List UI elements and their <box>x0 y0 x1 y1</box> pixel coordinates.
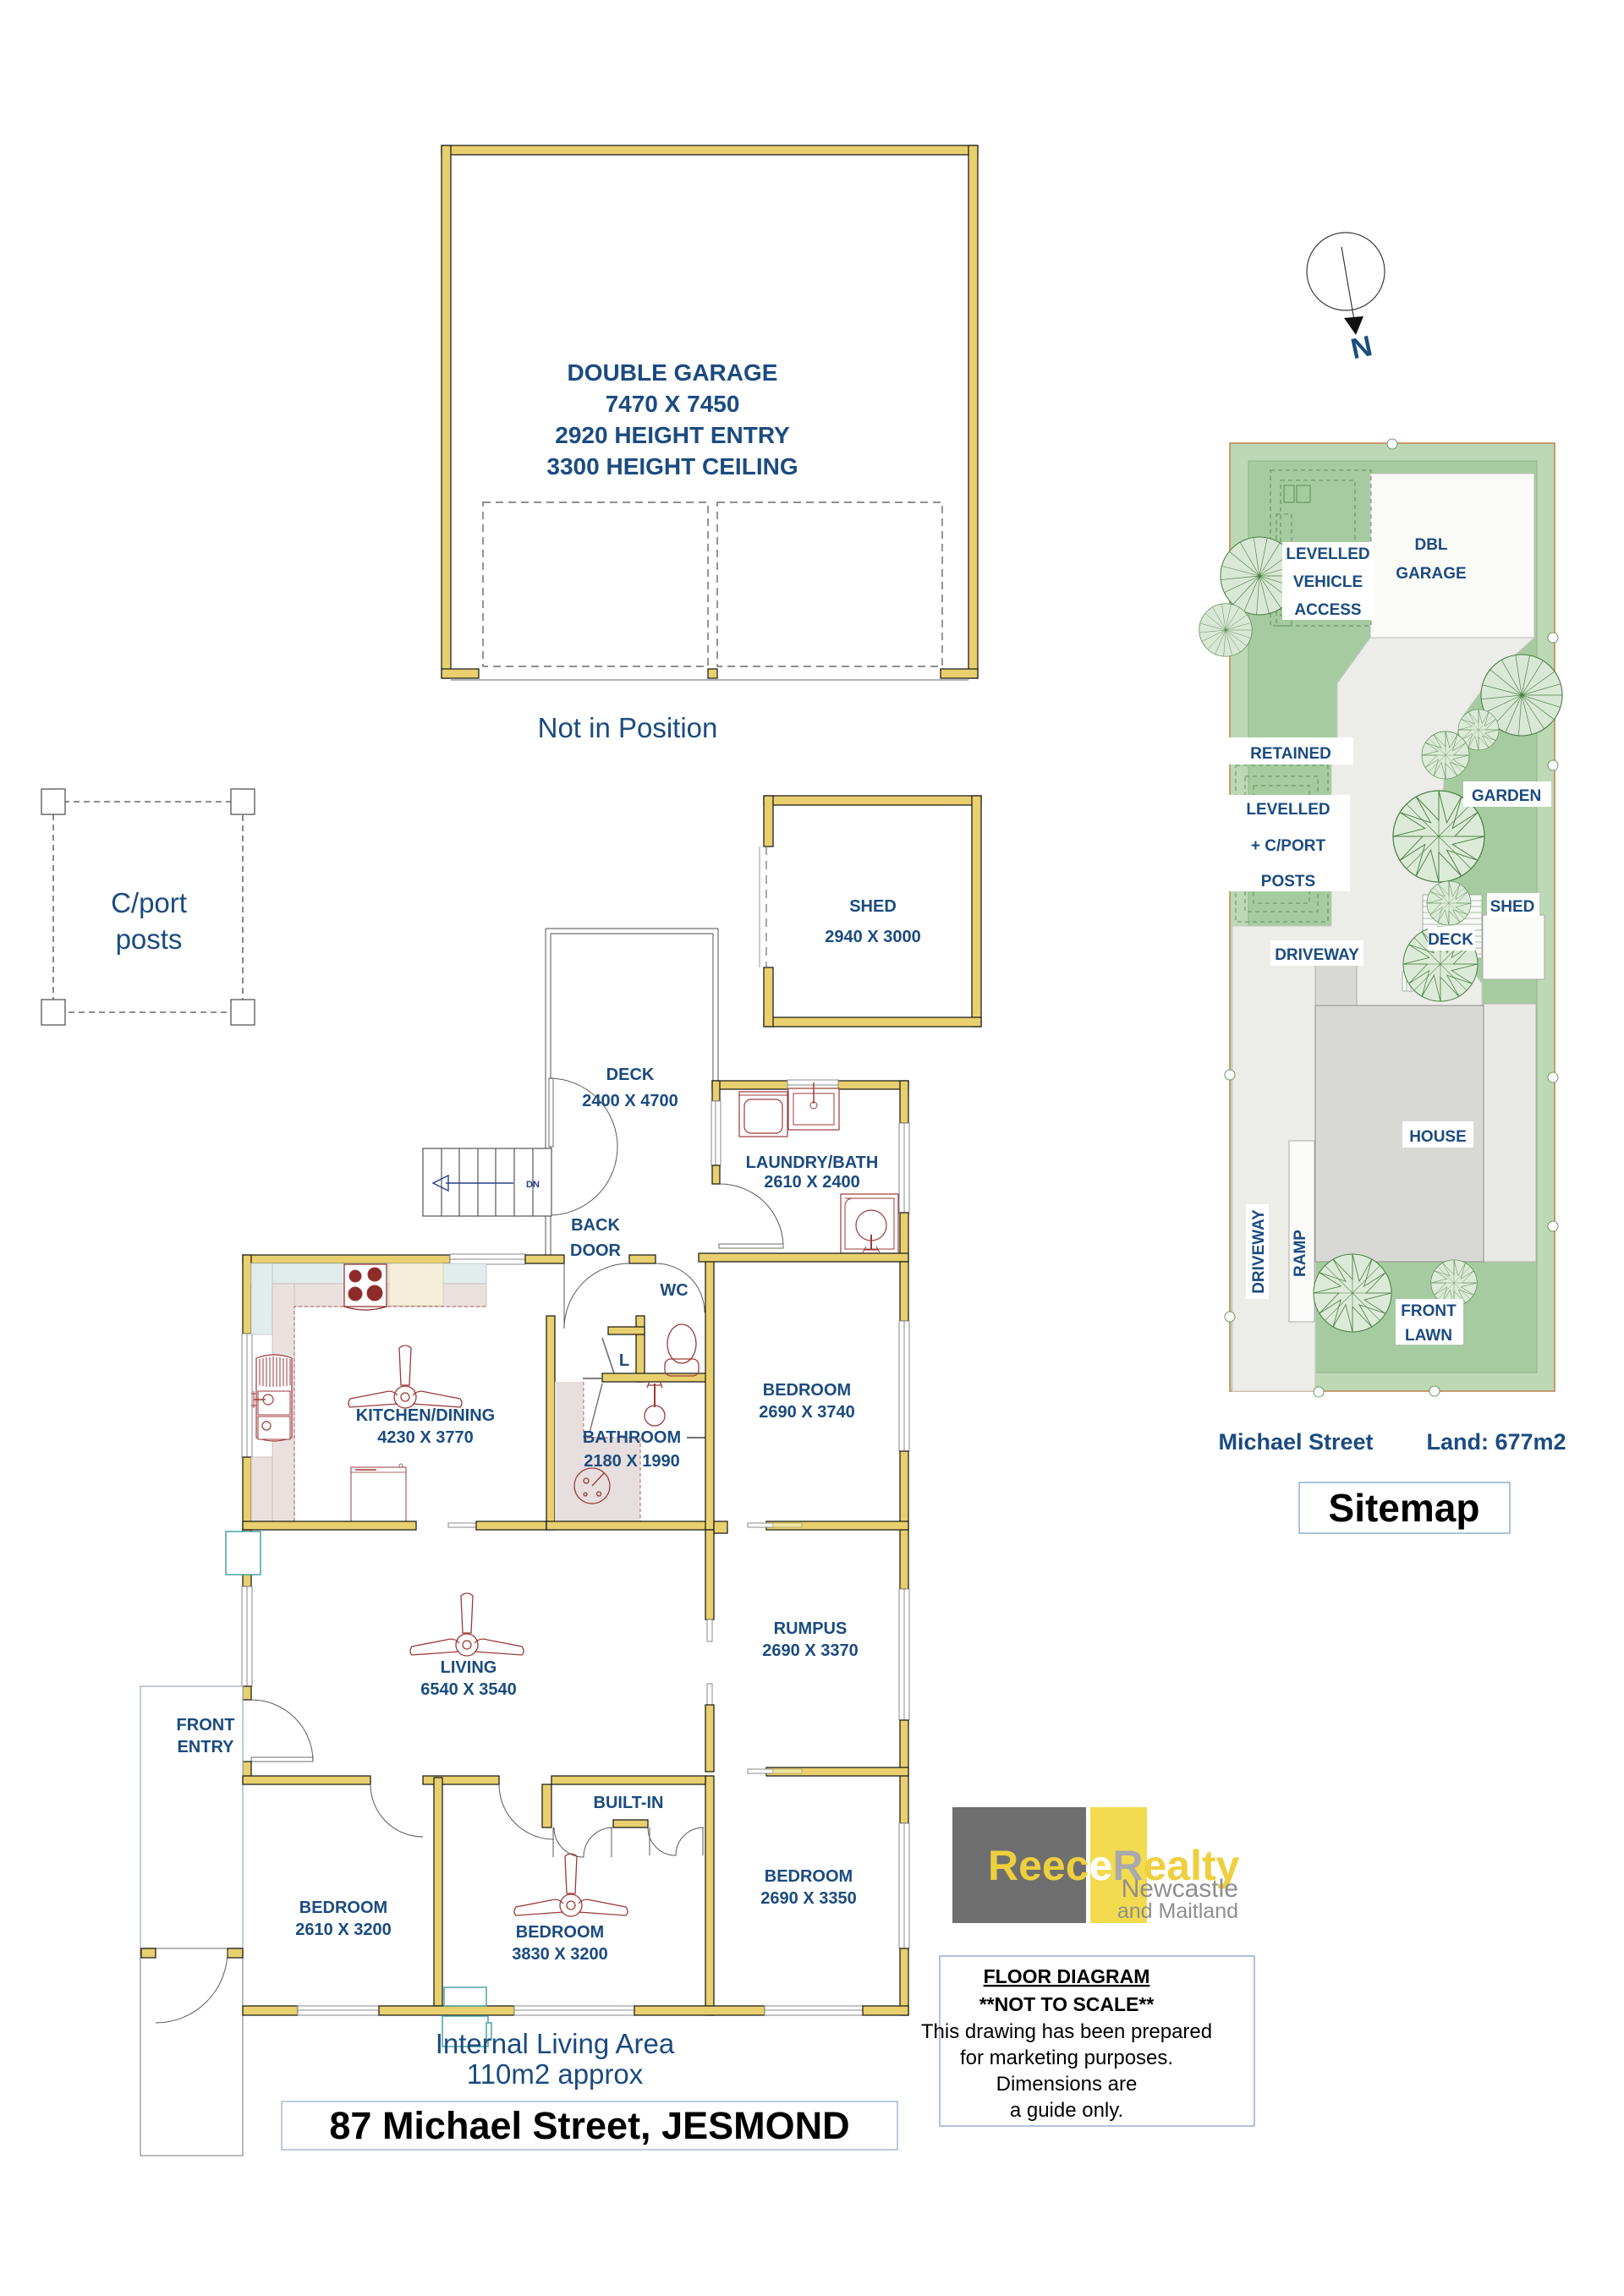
svg-text:DECK: DECK <box>606 1066 655 1084</box>
svg-text:BATHROOM: BATHROOM <box>583 1428 681 1447</box>
svg-text:+ C/PORT: + C/PORT <box>1251 837 1326 855</box>
svg-text:LEVELLED: LEVELLED <box>1246 801 1330 819</box>
svg-text:DBL: DBL <box>1414 536 1447 554</box>
svg-text:6540 X 3540: 6540 X 3540 <box>420 1680 516 1699</box>
svg-text:Michael Street: Michael Street <box>1218 1429 1373 1455</box>
svg-text:2940 X 3000: 2940 X 3000 <box>825 928 920 946</box>
svg-text:FRONT: FRONT <box>1401 1302 1457 1320</box>
svg-text:for marketing purposes.: for marketing purposes. <box>960 2047 1173 2069</box>
svg-text:LIVING: LIVING <box>441 1658 497 1677</box>
svg-text:DOOR: DOOR <box>570 1241 622 1260</box>
svg-text:LAUNDRY/BATH: LAUNDRY/BATH <box>746 1153 879 1172</box>
svg-text:110m2 approx: 110m2 approx <box>467 2058 644 2090</box>
svg-text:POSTS: POSTS <box>1261 873 1315 890</box>
svg-text:DECK: DECK <box>1428 931 1473 949</box>
svg-text:2920 HEIGHT ENTRY: 2920 HEIGHT ENTRY <box>555 422 790 448</box>
svg-text:DN: DN <box>526 1180 540 1190</box>
svg-text:BACK: BACK <box>571 1216 620 1235</box>
svg-text:WC: WC <box>660 1281 688 1300</box>
svg-text:RAMP: RAMP <box>1292 1230 1309 1277</box>
svg-text:posts: posts <box>116 923 183 955</box>
svg-text:FRONT: FRONT <box>177 1716 235 1734</box>
svg-text:This drawing has been prepared: This drawing has been prepared <box>921 2020 1212 2043</box>
svg-text:DOUBLE GARAGE: DOUBLE GARAGE <box>568 359 778 386</box>
svg-text:HOUSE: HOUSE <box>1409 1128 1467 1146</box>
svg-text:BUILT-IN: BUILT-IN <box>594 1794 664 1812</box>
svg-text:Dimensions are: Dimensions are <box>996 2073 1138 2096</box>
svg-text:DRIVEWAY: DRIVEWAY <box>1250 1209 1268 1294</box>
svg-text:BEDROOM: BEDROOM <box>763 1381 851 1400</box>
svg-text:7470 X 7450: 7470 X 7450 <box>606 391 740 417</box>
svg-text:BEDROOM: BEDROOM <box>516 1923 604 1942</box>
svg-text:LEVELLED: LEVELLED <box>1286 545 1369 563</box>
svg-text:2690 X 3370: 2690 X 3370 <box>762 1641 858 1660</box>
svg-text:**NOT TO SCALE**: **NOT TO SCALE** <box>979 1993 1155 2015</box>
svg-text:L: L <box>619 1351 629 1370</box>
svg-text:LAWN: LAWN <box>1405 1327 1452 1345</box>
svg-text:and Maitland: and Maitland <box>1117 1899 1238 1923</box>
svg-text:RETAINED: RETAINED <box>1250 745 1331 763</box>
svg-text:ACCESS: ACCESS <box>1294 601 1361 619</box>
svg-text:FLOOR DIAGRAM: FLOOR DIAGRAM <box>984 1965 1150 1987</box>
svg-text:ENTRY: ENTRY <box>177 1738 234 1756</box>
svg-text:KITCHEN/DINING: KITCHEN/DINING <box>356 1406 495 1425</box>
svg-text:BEDROOM: BEDROOM <box>299 1899 387 1917</box>
svg-text:3300 HEIGHT CEILING: 3300 HEIGHT CEILING <box>546 453 798 479</box>
svg-text:2400 X 4700: 2400 X 4700 <box>582 1092 678 1110</box>
svg-text:2610 X 3200: 2610 X 3200 <box>295 1921 391 1939</box>
svg-text:GARDEN: GARDEN <box>1472 787 1541 805</box>
svg-text:2690 X 3350: 2690 X 3350 <box>760 1889 856 1908</box>
svg-text:SHED: SHED <box>1490 898 1535 916</box>
svg-text:2180 X 1990: 2180 X 1990 <box>584 1452 679 1471</box>
svg-text:Sitemap: Sitemap <box>1329 1486 1480 1530</box>
svg-text:Internal Living Area: Internal Living Area <box>436 2028 675 2059</box>
svg-text:DRIVEWAY: DRIVEWAY <box>1275 946 1359 964</box>
svg-text:4230 X 3770: 4230 X 3770 <box>377 1428 473 1447</box>
svg-text:GARAGE: GARAGE <box>1396 565 1466 583</box>
svg-text:Not in Position: Not in Position <box>538 712 718 743</box>
svg-text:C/port: C/port <box>111 887 187 918</box>
svg-text:RUMPUS: RUMPUS <box>774 1619 848 1638</box>
svg-text:87 Michael Street, JESMOND: 87 Michael Street, JESMOND <box>329 2104 849 2147</box>
svg-text:BEDROOM: BEDROOM <box>765 1867 853 1886</box>
svg-text:Land: 677m2: Land: 677m2 <box>1426 1429 1566 1455</box>
svg-text:SHED: SHED <box>849 897 897 916</box>
svg-text:VEHICLE: VEHICLE <box>1293 573 1363 591</box>
svg-text:a guide only.: a guide only. <box>1010 2099 1123 2122</box>
svg-text:3830 X 3200: 3830 X 3200 <box>512 1945 607 1964</box>
svg-text:2610 X 2400: 2610 X 2400 <box>764 1173 859 1192</box>
svg-text:2690 X 3740: 2690 X 3740 <box>759 1403 854 1422</box>
